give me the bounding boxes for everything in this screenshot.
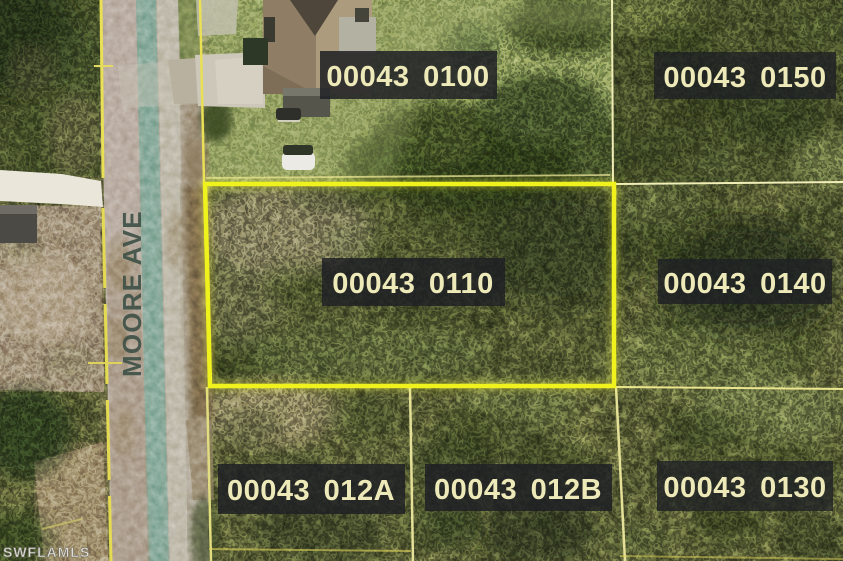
svg-text:00043 0130: 00043 0130 bbox=[663, 472, 826, 504]
svg-text:SWFLAMLS: SWFLAMLS bbox=[3, 544, 90, 560]
svg-text:00043 0110: 00043 0110 bbox=[332, 268, 494, 300]
svg-text:00043 0140: 00043 0140 bbox=[663, 268, 826, 300]
svg-text:00043 0150: 00043 0150 bbox=[663, 62, 826, 94]
svg-text:00043 012A: 00043 012A bbox=[227, 475, 395, 507]
svg-text:MOORE AVE: MOORE AVE bbox=[117, 210, 147, 377]
svg-text:00043 0100: 00043 0100 bbox=[326, 61, 489, 93]
svg-text:00043 012B: 00043 012B bbox=[434, 474, 602, 506]
